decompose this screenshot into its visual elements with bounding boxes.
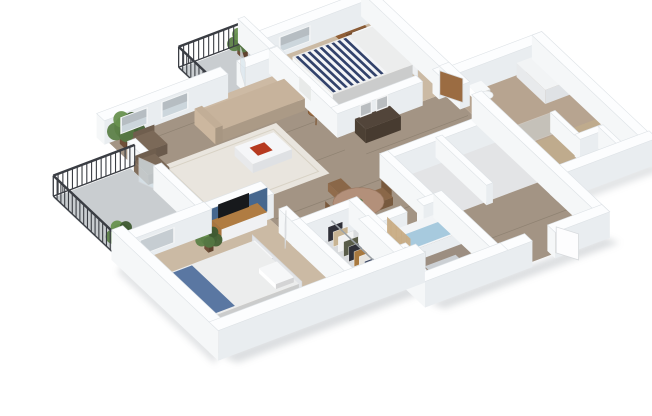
- apartment-3d-floor-plan-render: [0, 0, 652, 416]
- floor-plan-canvas: [0, 0, 652, 416]
- wall-storage-divider: [486, 183, 493, 206]
- railing-balconyA-nw-top: [53, 145, 134, 176]
- potted-plant-bedroom2-foliage: [204, 236, 215, 247]
- sofa-arm-left: [215, 126, 222, 145]
